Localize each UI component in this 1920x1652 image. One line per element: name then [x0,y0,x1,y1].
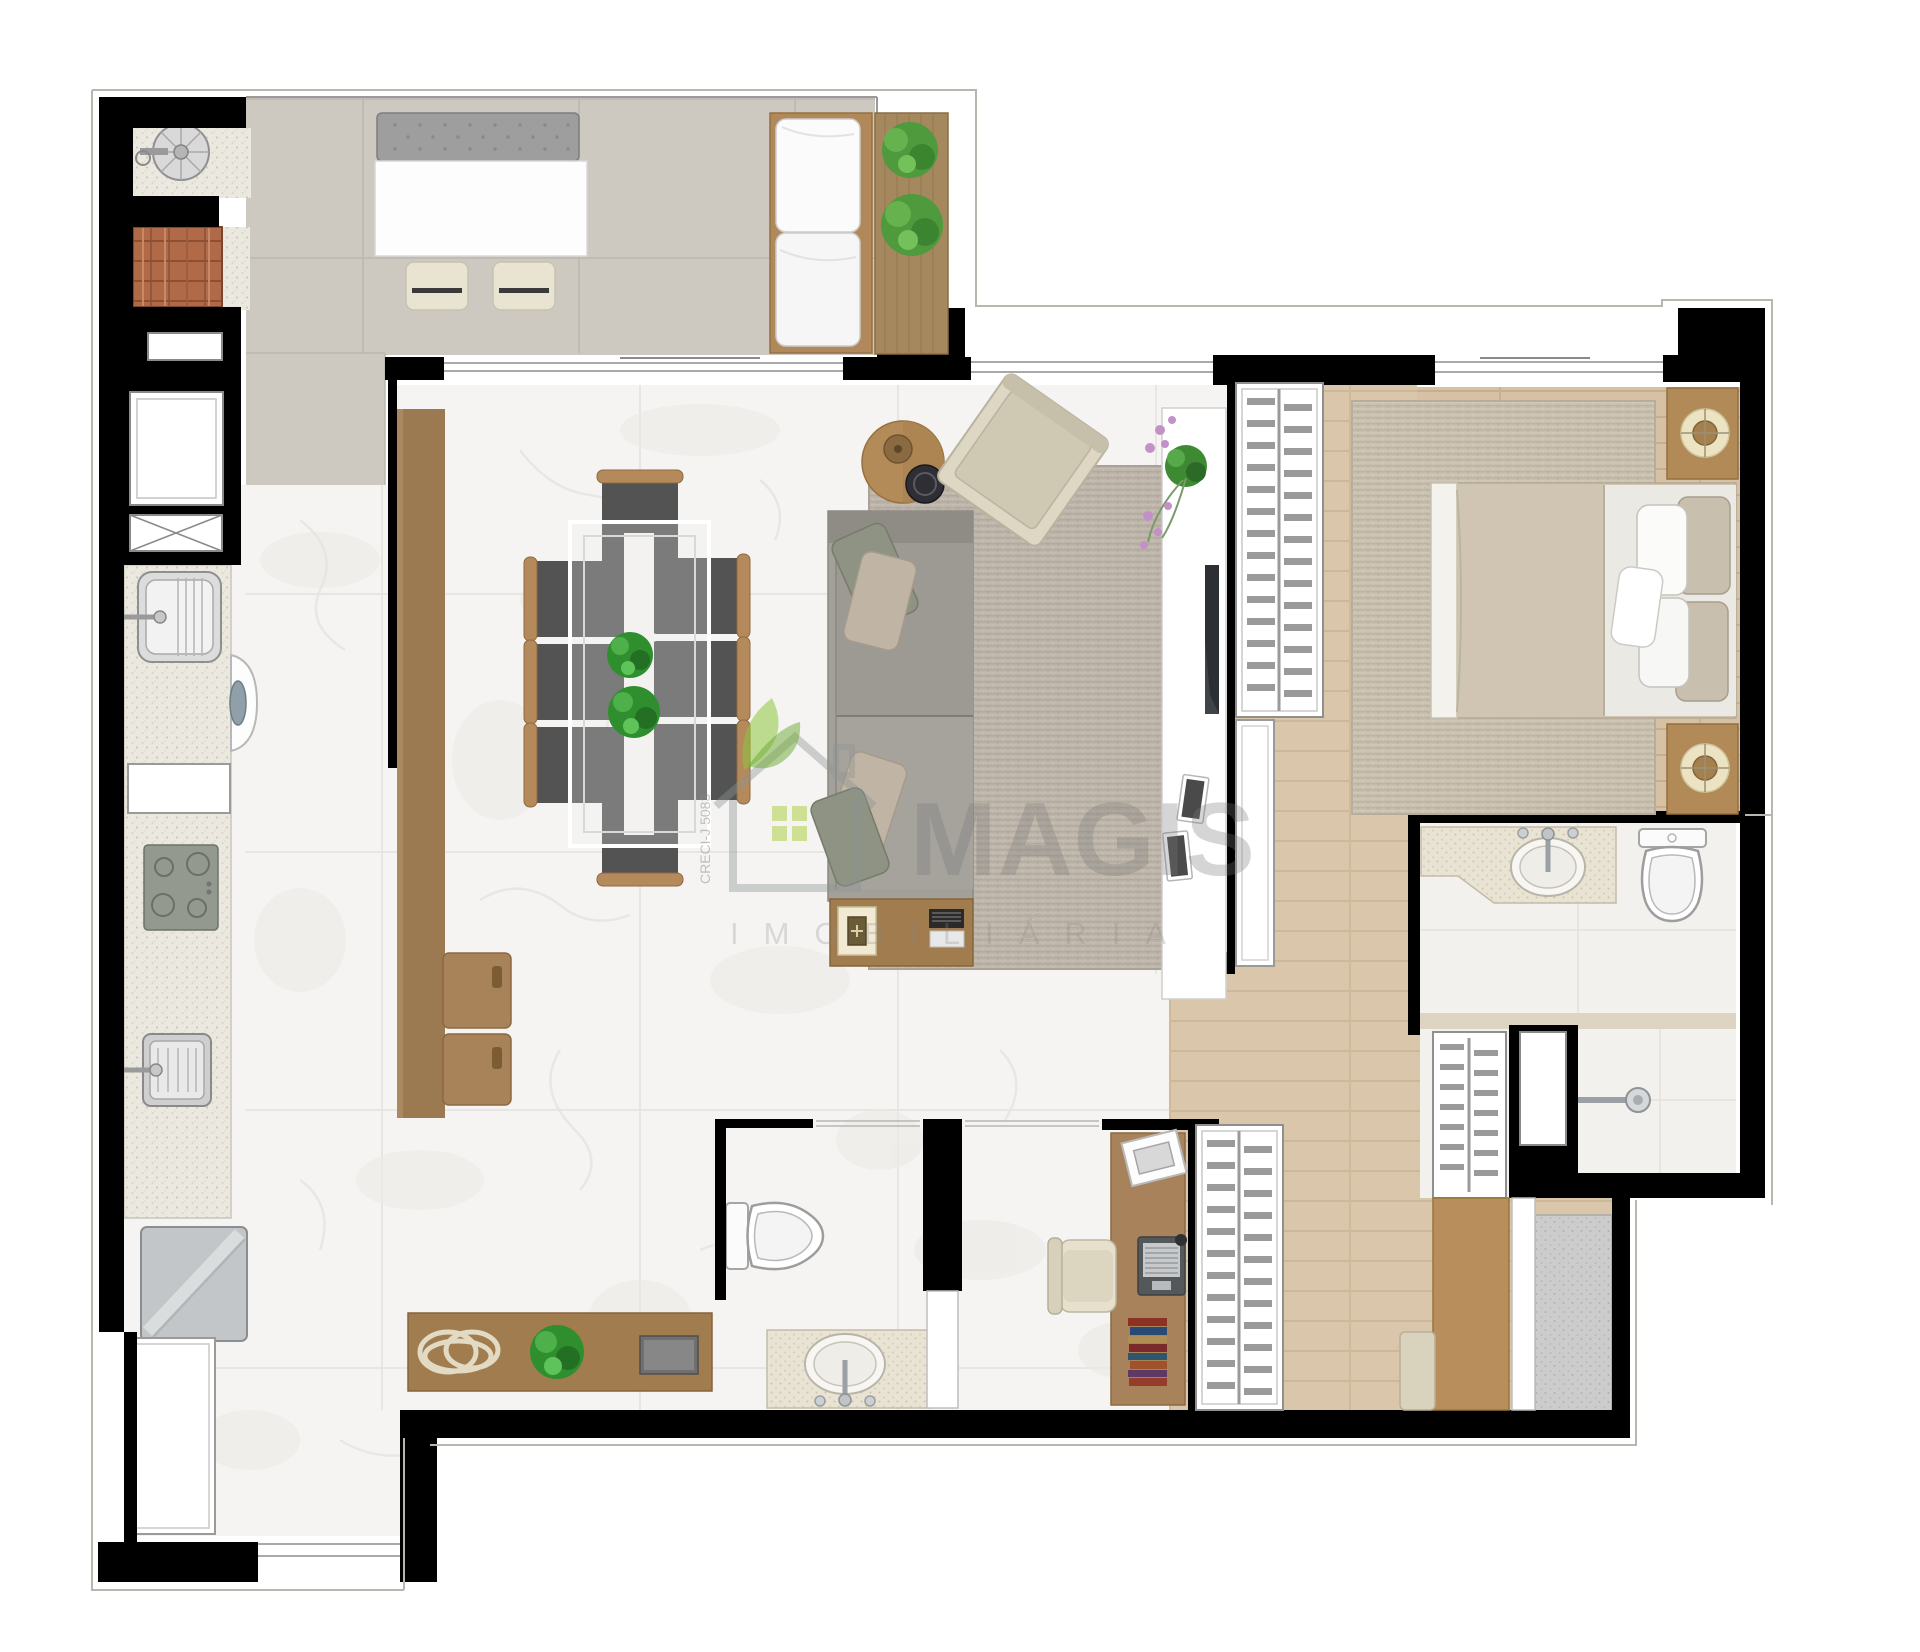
svg-text:CRECI-J 5083: CRECI-J 5083 [697,794,713,884]
svg-text:IMOBILIÁRIA: IMOBILIÁRIA [730,916,1191,951]
svg-text:MAGIS: MAGIS [910,782,1256,898]
